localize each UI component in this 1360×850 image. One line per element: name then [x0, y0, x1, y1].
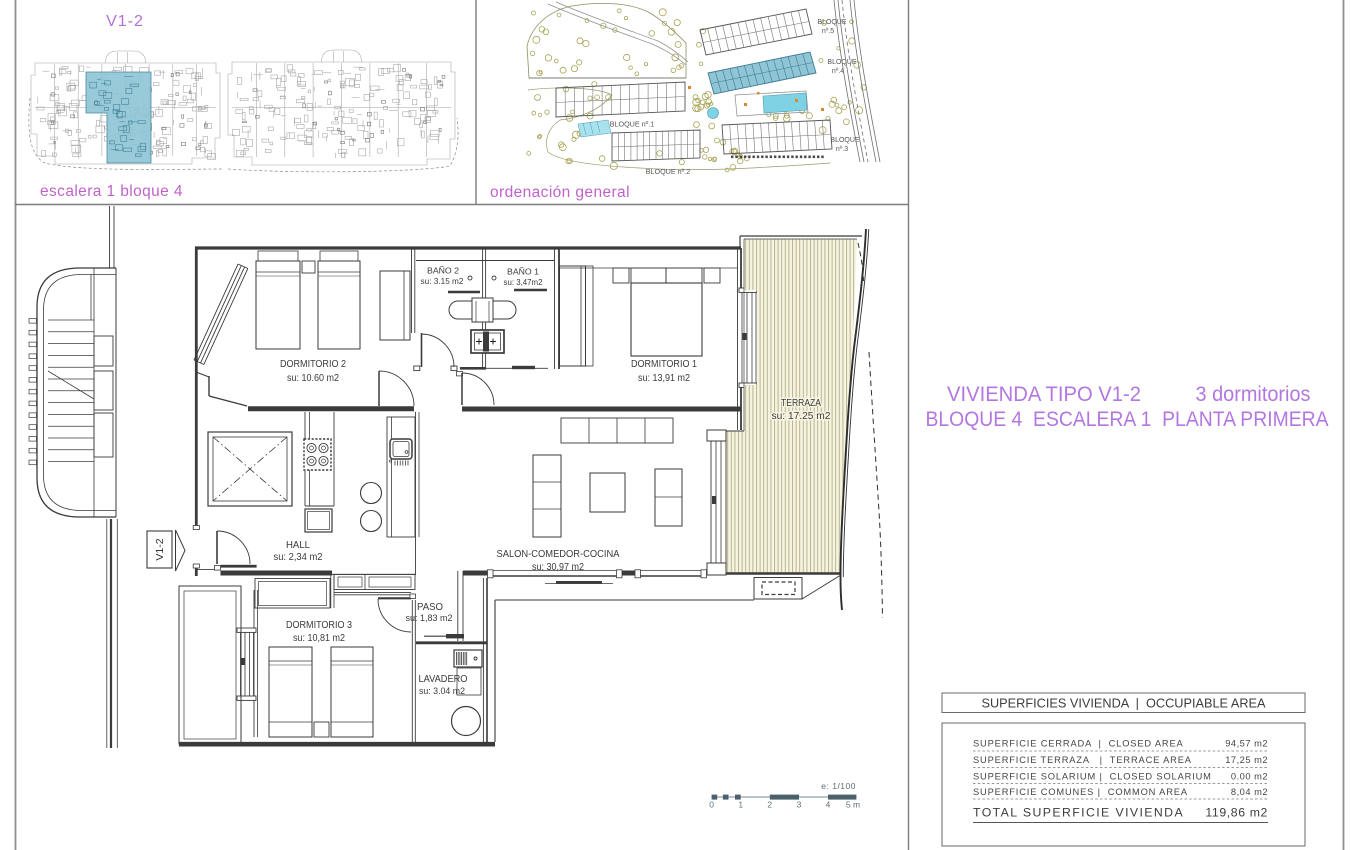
svg-text:su: 2,34 m2: su: 2,34 m2 — [274, 552, 323, 563]
svg-text:SUPERFICIE SOLARIUM | CLOSED: SUPERFICIE SOLARIUM | CLOSED SOLARIUM — [973, 772, 1212, 782]
svg-text:escalera 1 bloque 4: escalera 1 bloque 4 — [40, 183, 183, 200]
svg-text:8,04 m2: 8,04 m2 — [1231, 787, 1268, 797]
svg-text:su: 10,81 m2: su: 10,81 m2 — [293, 633, 345, 644]
svg-text:su: 10.60 m2: su: 10.60 m2 — [287, 373, 339, 384]
svg-text:TERRAZA: TERRAZA — [781, 398, 821, 409]
svg-text:su: 30,97 m2: su: 30,97 m2 — [532, 562, 584, 573]
svg-text:TOTAL SUPERFICIE VIVIENDA: TOTAL SUPERFICIE VIVIENDA — [973, 806, 1184, 820]
svg-text:su: 17.25 m2: su: 17.25 m2 — [772, 411, 831, 422]
svg-text:DORMITORIO 1: DORMITORIO 1 — [631, 359, 697, 370]
svg-text:5 m: 5 m — [846, 800, 860, 810]
svg-text:nº.5: nº.5 — [822, 28, 834, 35]
svg-text:V1-2: V1-2 — [154, 538, 166, 560]
svg-text:BLOQUE nº.2: BLOQUE nº.2 — [646, 167, 691, 176]
svg-text:VIVIENDA TIPO V1-2: VIVIENDA TIPO V1-2 — [947, 383, 1141, 406]
svg-text:1: 1 — [738, 800, 743, 810]
svg-text:DORMITORIO 2: DORMITORIO 2 — [280, 359, 346, 370]
svg-text:SUPERFICIE CERRADA | CLOSED: SUPERFICIE CERRADA | CLOSED AREA — [973, 739, 1184, 749]
svg-text:SUPERFICIES VIVIENDA | OCCUP: SUPERFICIES VIVIENDA | OCCUPIABLE AREA — [982, 696, 1266, 711]
svg-text:3: 3 — [797, 800, 802, 810]
svg-text:0.00 m2: 0.00 m2 — [1231, 772, 1268, 782]
svg-text:4: 4 — [826, 800, 831, 810]
svg-text:BAÑO 2: BAÑO 2 — [427, 266, 459, 276]
svg-text:0: 0 — [709, 800, 714, 810]
svg-text:SALON-COMEDOR-COCINA: SALON-COMEDOR-COCINA — [497, 549, 620, 560]
svg-text:su: 3.15 m2: su: 3.15 m2 — [421, 277, 464, 286]
svg-text:3 dormitorios: 3 dormitorios — [1196, 383, 1311, 406]
svg-text:e: 1/100: e: 1/100 — [821, 781, 856, 791]
svg-text:LAVADERO: LAVADERO — [419, 674, 468, 685]
svg-text:BLOQUE: BLOQUE — [817, 19, 847, 26]
svg-text:SUPERFICIE COMUNES | COMMON A: SUPERFICIE COMUNES | COMMON AREA — [973, 787, 1188, 797]
svg-text:BAÑO 1: BAÑO 1 — [507, 267, 539, 277]
svg-text:HALL: HALL — [286, 540, 310, 551]
svg-text:ordenación general: ordenación general — [490, 184, 630, 201]
svg-text:nº.4: nº.4 — [832, 68, 844, 75]
svg-text:nº.3: nº.3 — [836, 146, 848, 153]
svg-text:su: 13,91 m2: su: 13,91 m2 — [638, 373, 690, 384]
svg-text:119,86 m2: 119,86 m2 — [1205, 806, 1268, 820]
svg-text:2: 2 — [767, 800, 772, 810]
svg-text:PASO: PASO — [417, 602, 443, 613]
svg-text:su: 3,47m2: su: 3,47m2 — [504, 278, 543, 287]
svg-text:V1-2: V1-2 — [106, 13, 144, 30]
svg-text:BLOQUE 4 ESCALERA 1 PLANTA P: BLOQUE 4 ESCALERA 1 PLANTA PRIMERA — [926, 408, 1329, 431]
svg-text:SUPERFICIE TERRAZA | TERRAC: SUPERFICIE TERRAZA | TERRACE AREA — [973, 755, 1192, 765]
svg-text:DORMITORIO 3: DORMITORIO 3 — [286, 620, 352, 631]
svg-text:BLOQUE nº.1: BLOQUE nº.1 — [610, 120, 655, 129]
svg-text:94,57 m2: 94,57 m2 — [1225, 739, 1268, 749]
svg-text:17,25 m2: 17,25 m2 — [1225, 755, 1268, 765]
